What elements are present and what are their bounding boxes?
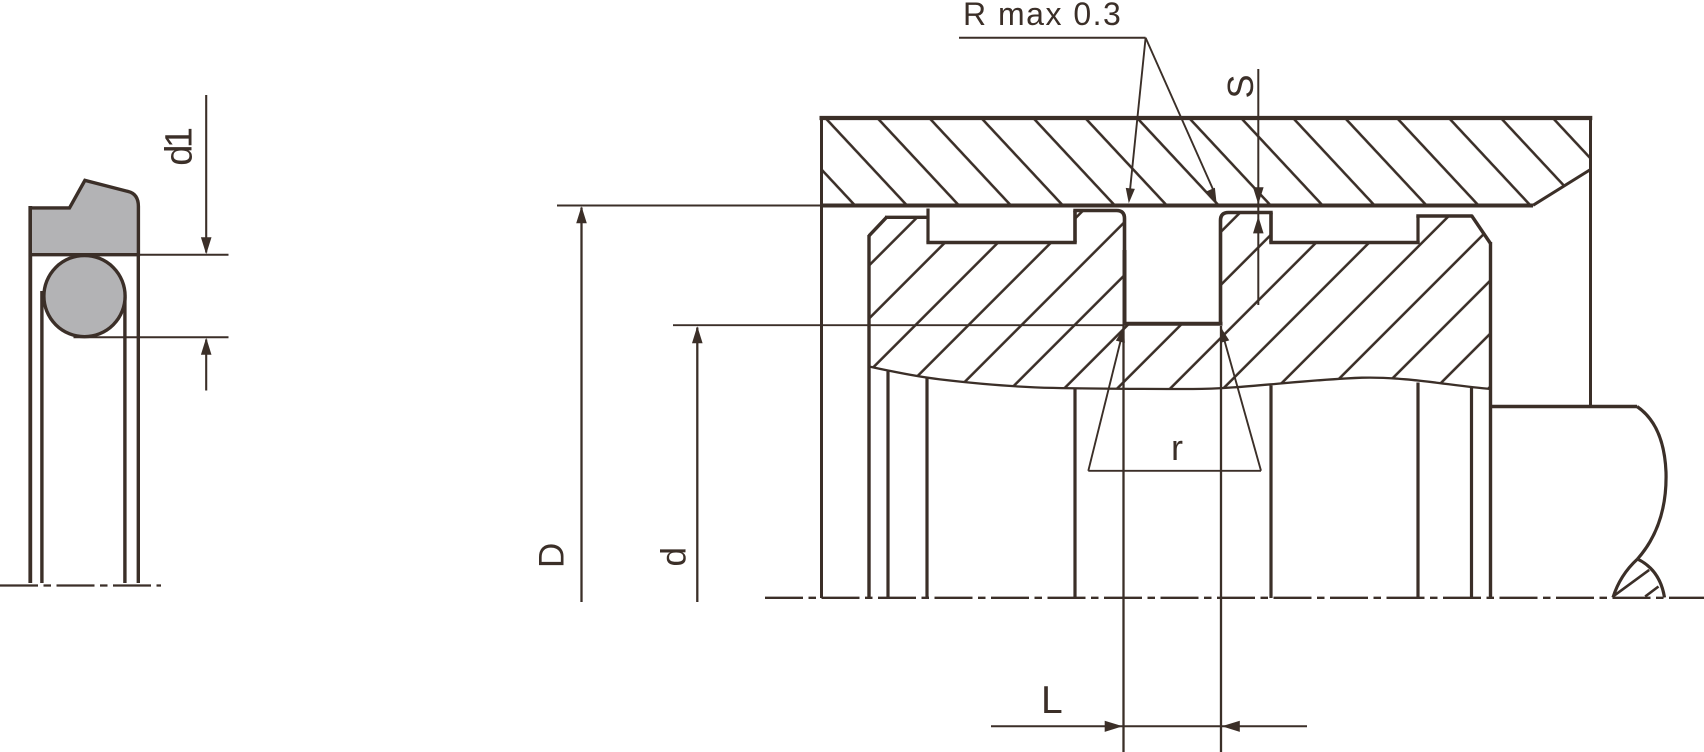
svg-text:D: D <box>533 543 572 568</box>
svg-text:r: r <box>1171 427 1183 468</box>
svg-text:S: S <box>1220 74 1261 98</box>
svg-text:L: L <box>1041 679 1063 722</box>
svg-text:d: d <box>655 547 694 566</box>
svg-text:R max 0.3: R max 0.3 <box>963 0 1122 32</box>
svg-text:d1: d1 <box>158 128 200 166</box>
